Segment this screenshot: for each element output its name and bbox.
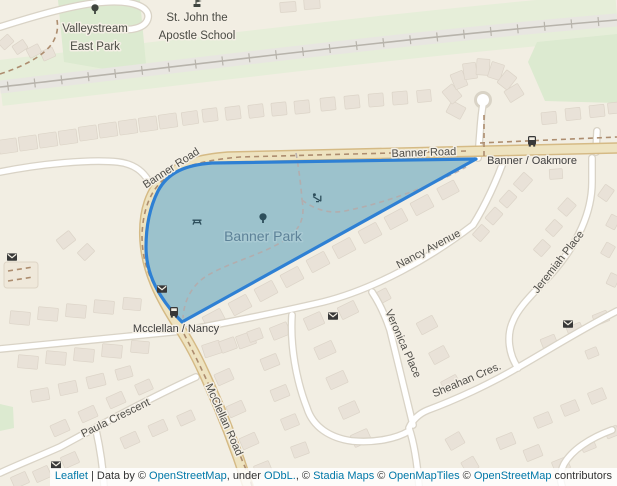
building [462, 62, 477, 80]
building [37, 307, 58, 322]
building [98, 122, 118, 138]
attr-text: , © [296, 470, 313, 482]
openstreetmap-link[interactable]: OpenStreetMap [149, 470, 227, 482]
mail-icon [328, 312, 338, 319]
attr-text: | Data by © [88, 470, 149, 482]
building [101, 344, 122, 359]
building [58, 129, 78, 145]
building [417, 89, 432, 102]
leaflet-link[interactable]: Leaflet [55, 470, 88, 482]
banner-road-east-label: Banner Road [391, 146, 456, 160]
building [294, 100, 310, 114]
building [9, 311, 30, 326]
building [131, 340, 150, 354]
building [45, 351, 66, 366]
building [248, 104, 264, 119]
mcclellan-nancy-stop-label: Mcclellan / Nancy [133, 323, 220, 335]
banner-park-label: Banner Park [224, 228, 303, 244]
building [344, 95, 360, 109]
culdesac-bulb-fill [477, 94, 489, 106]
building [78, 125, 98, 141]
mail-icon [157, 285, 167, 292]
building [73, 348, 94, 363]
openstreetmap-link-2[interactable]: OpenStreetMap [474, 470, 552, 482]
building [392, 91, 408, 105]
building [0, 138, 18, 154]
building [607, 102, 617, 114]
odbl-link[interactable]: ODbL. [264, 470, 296, 482]
building [65, 304, 86, 319]
building [565, 107, 581, 121]
building [18, 135, 38, 151]
mail-icon [7, 253, 17, 260]
attr-text: contributors [551, 470, 612, 482]
building [280, 1, 297, 12]
building [549, 169, 563, 180]
building [225, 106, 241, 121]
building [476, 59, 490, 76]
attr-text: © [460, 470, 474, 482]
building [320, 97, 336, 111]
attr-text: , under [227, 470, 264, 482]
building [271, 102, 287, 116]
attr-text: © [374, 470, 388, 482]
parking-lot [4, 262, 38, 288]
building [138, 116, 158, 132]
map-canvas[interactable]: ValleystreamEast ParkSt. John theApostle… [0, 0, 617, 486]
green-area-west [0, 404, 14, 431]
banner-oakmore-stop-label: Banner / Oakmore [487, 155, 577, 167]
mail-icon [563, 320, 573, 327]
stadia-maps-link[interactable]: Stadia Maps [313, 470, 374, 482]
building [304, 0, 321, 10]
building [93, 300, 114, 315]
building [589, 104, 605, 118]
attribution-bar: Leaflet | Data by © OpenStreetMap, under… [50, 468, 617, 486]
map-container[interactable]: ValleystreamEast ParkSt. John theApostle… [0, 0, 617, 486]
building [38, 132, 58, 148]
building [368, 93, 384, 107]
building [17, 355, 38, 370]
building [118, 119, 138, 135]
building [158, 113, 178, 129]
openmaptiles-link[interactable]: OpenMapTiles [388, 470, 459, 482]
building [123, 297, 142, 311]
building [541, 111, 557, 125]
building [202, 108, 218, 123]
building [181, 110, 199, 125]
